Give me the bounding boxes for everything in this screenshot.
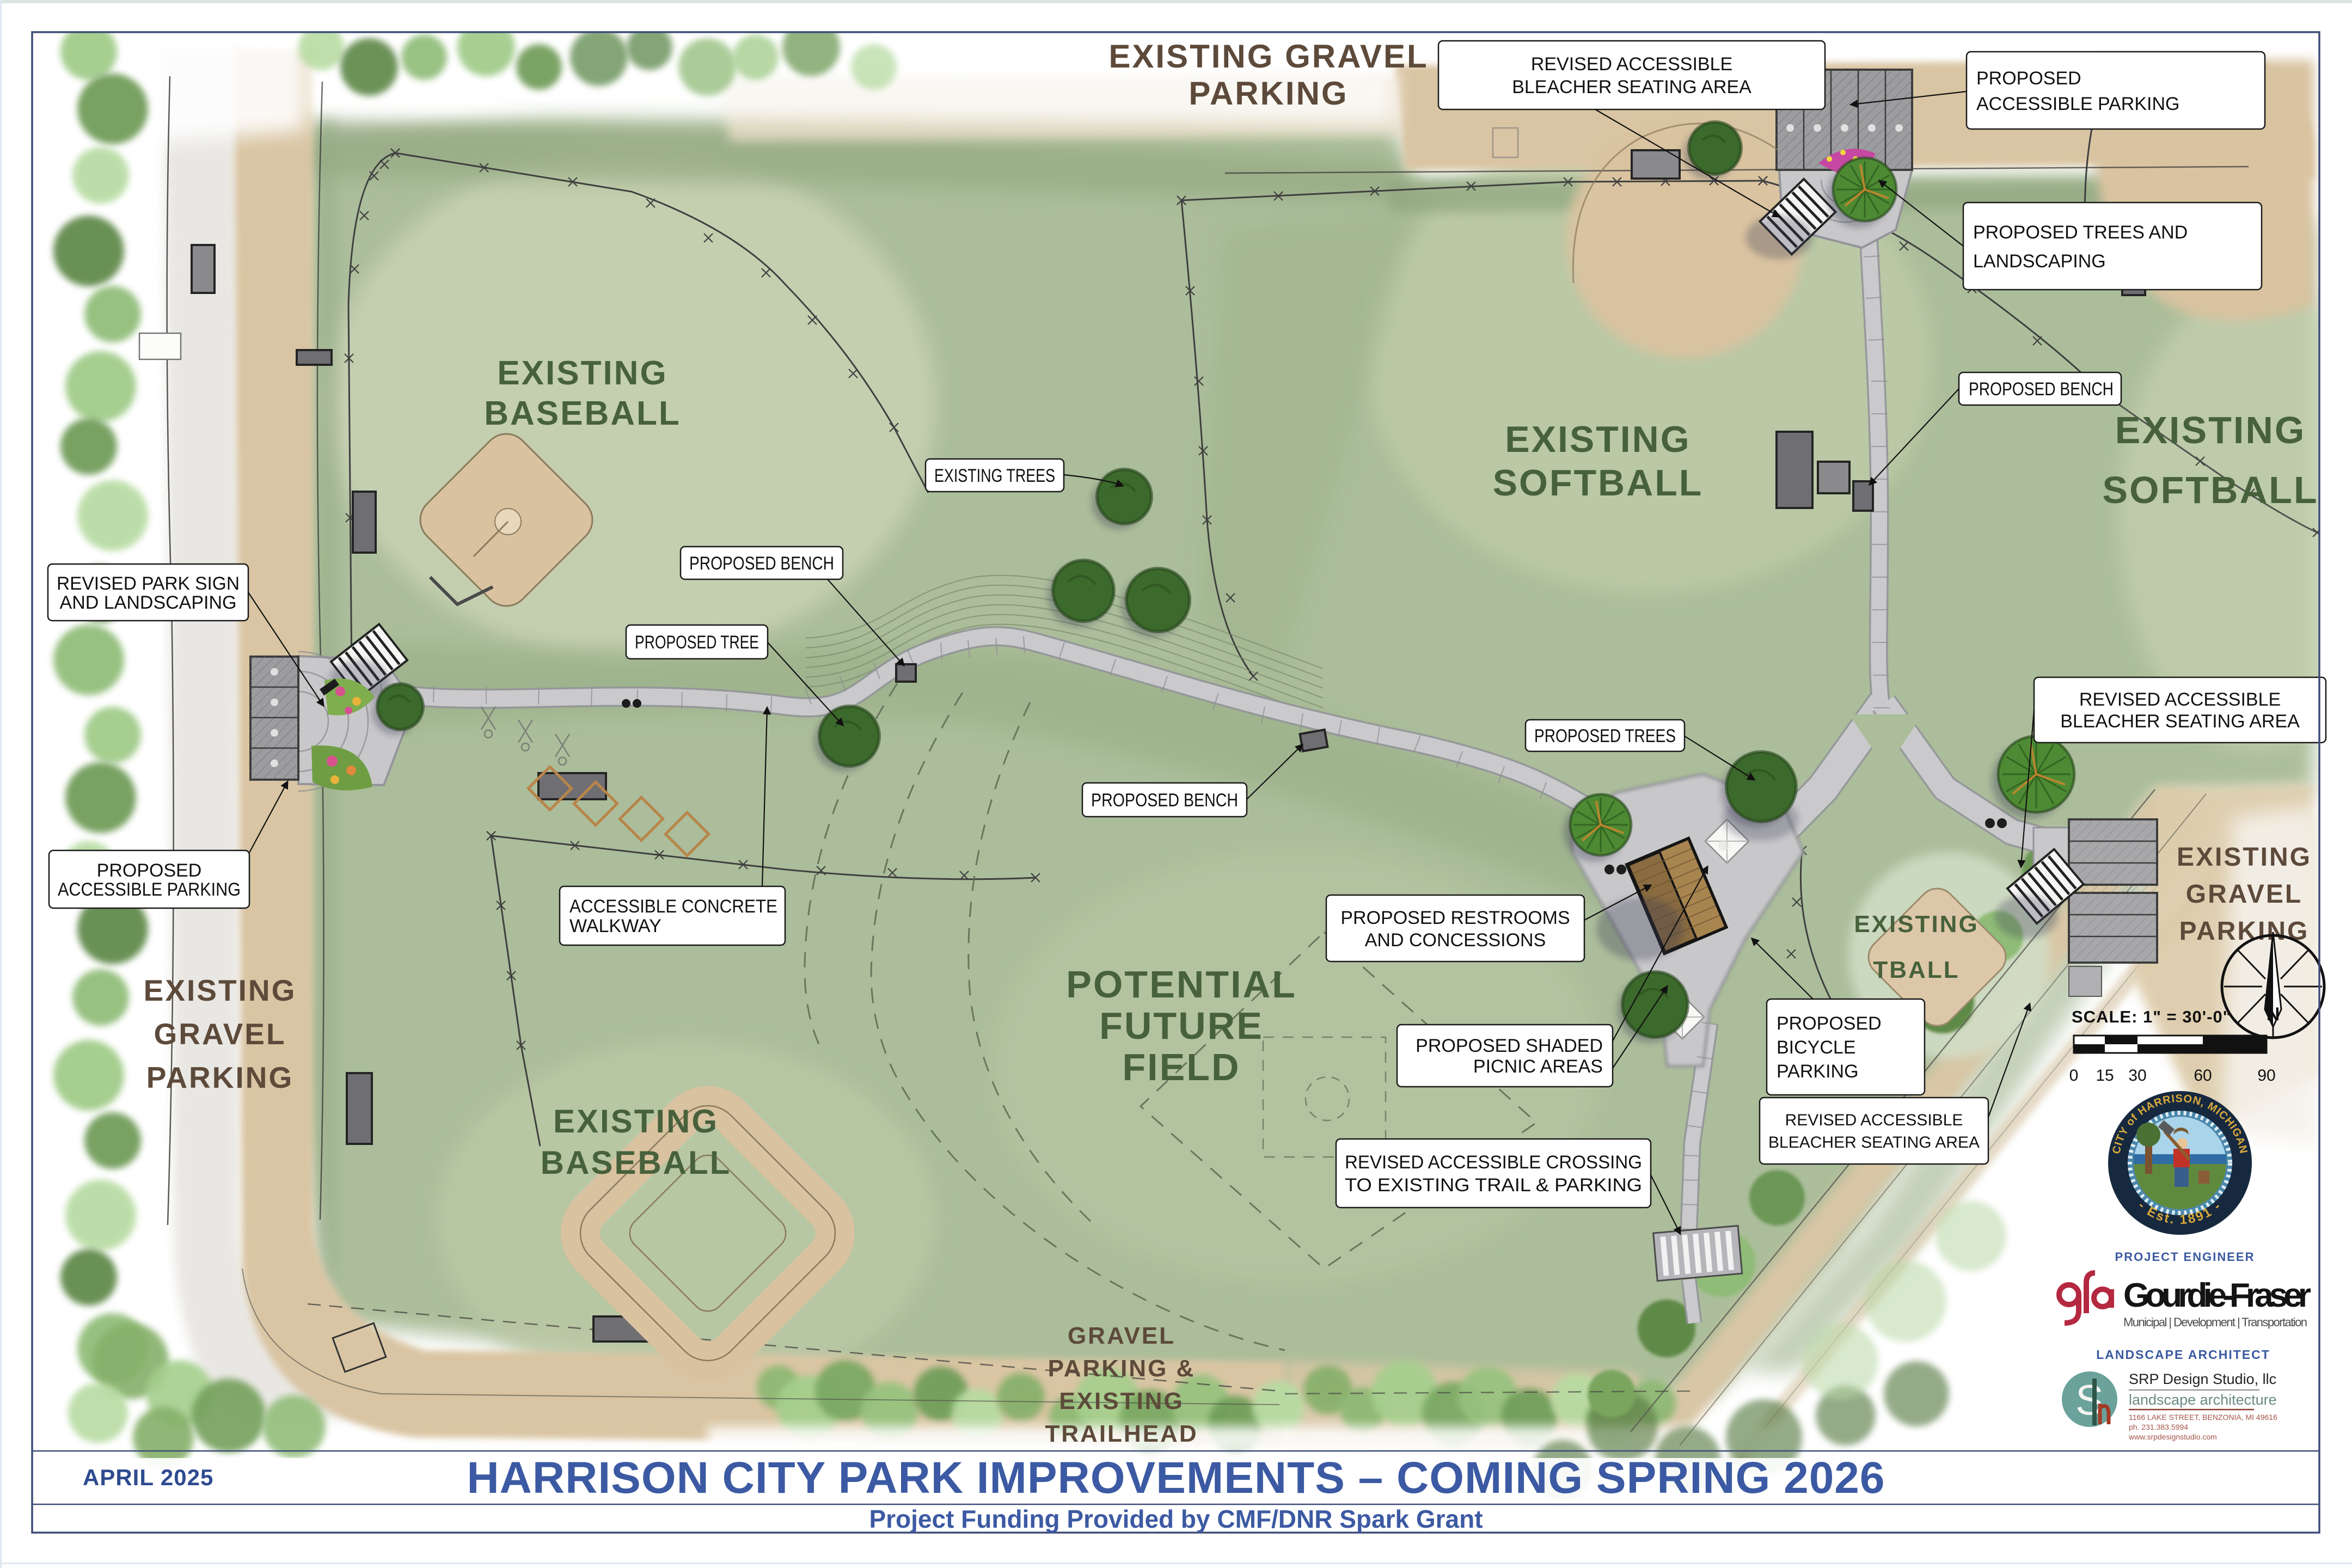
svg-text:60: 60 [2194,1067,2212,1085]
svg-text:PICNIC AREAS: PICNIC AREAS [1473,1056,1603,1077]
svg-text:TO EXISTING TRAIL & PARKING: TO EXISTING TRAIL & PARKING [1345,1175,1642,1196]
svg-text:PROPOSED TREE: PROPOSED TREE [635,632,759,653]
svg-text:PARKING: PARKING [2179,917,2310,946]
svg-text:TRAILHEAD: TRAILHEAD [1045,1420,1198,1447]
svg-text:Gourdie-Fraser: Gourdie-Fraser [2123,1277,2311,1314]
svg-text:EXISTING: EXISTING [553,1103,719,1140]
svg-text:REVISED ACCESSIBLE: REVISED ACCESSIBLE [1531,54,1732,75]
svg-text:FUTURE: FUTURE [1099,1004,1264,1047]
svg-text:PROPOSED: PROPOSED [1976,68,2081,89]
svg-text:PARKING &: PARKING & [1048,1355,1196,1382]
svg-text:ACCESSIBLE PARKING: ACCESSIBLE PARKING [58,879,241,900]
svg-text:PARKING: PARKING [1189,75,1348,112]
svg-text:REVISED ACCESSIBLE: REVISED ACCESSIBLE [1785,1111,1963,1129]
svg-text:GRAVEL: GRAVEL [1068,1322,1175,1349]
svg-text:PROPOSED SHADED: PROPOSED SHADED [1416,1036,1603,1056]
svg-text:REVISED ACCESSIBLE CROSSING: REVISED ACCESSIBLE CROSSING [1345,1152,1642,1173]
svg-text:BASEBALL: BASEBALL [541,1144,732,1181]
svg-text:30: 30 [2128,1067,2146,1085]
svg-text:ph. 231.383.5994: ph. 231.383.5994 [2129,1423,2188,1431]
svg-text:BICYCLE: BICYCLE [1777,1037,1856,1058]
svg-text:BLEACHER SEATING AREA: BLEACHER SEATING AREA [1768,1134,1980,1151]
svg-text:HARRISON CITY PARK IMPROVEMENT: HARRISON CITY PARK IMPROVEMENTS – COMING… [467,1453,1885,1503]
svg-text:LANDSCAPE ARCHITECT: LANDSCAPE ARCHITECT [2096,1347,2270,1362]
svg-text:Project Funding Provided by CM: Project Funding Provided by CMF/DNR Spar… [869,1505,1483,1533]
svg-text:EXISTING: EXISTING [1854,911,1979,938]
svg-text:PROPOSED: PROPOSED [97,860,202,881]
svg-text:EXISTING: EXISTING [497,354,667,392]
svg-text:PARKING: PARKING [1777,1061,1859,1082]
svg-text:SCALE: 1" = 30'-0": SCALE: 1" = 30'-0" [2072,1007,2231,1026]
svg-text:0: 0 [2069,1067,2079,1085]
svg-text:REVISED PARK SIGN: REVISED PARK SIGN [57,573,240,594]
svg-text:Municipal | Development | Tran: Municipal | Development | Transportation [2123,1315,2307,1329]
svg-text:EXISTING GRAVEL: EXISTING GRAVEL [1108,38,1428,75]
svg-text:90: 90 [2257,1067,2275,1085]
svg-text:ACCESSIBLE PARKING: ACCESSIBLE PARKING [1976,94,2180,114]
svg-text:REVISED ACCESSIBLE: REVISED ACCESSIBLE [2079,689,2281,710]
svg-text:EXISTING TREES: EXISTING TREES [934,465,1055,486]
svg-text:APRIL 2025: APRIL 2025 [83,1465,213,1490]
svg-text:N: N [2267,1004,2280,1025]
svg-text:PROPOSED RESTROOMS: PROPOSED RESTROOMS [1340,908,1570,928]
svg-text:GRAVEL: GRAVEL [154,1017,286,1051]
svg-text:EXISTING: EXISTING [1505,419,1690,460]
svg-text:ACCESSIBLE CONCRETE: ACCESSIBLE CONCRETE [569,896,777,917]
svg-text:PROJECT ENGINEER: PROJECT ENGINEER [2115,1250,2255,1264]
svg-text:www.srpdesignstudio.com: www.srpdesignstudio.com [2128,1432,2217,1441]
svg-text:WALKWAY: WALKWAY [569,916,661,936]
svg-text:landscape architecture: landscape architecture [2129,1392,2277,1408]
svg-text:BASEBALL: BASEBALL [484,395,681,432]
svg-text:TBALL: TBALL [1873,957,1959,983]
svg-text:BLEACHER SEATING AREA: BLEACHER SEATING AREA [1512,77,1751,97]
svg-text:PARKING: PARKING [146,1061,294,1094]
svg-text:AND CONCESSIONS: AND CONCESSIONS [1365,930,1546,951]
svg-text:EXISTING: EXISTING [2177,843,2312,872]
svg-text:GRAVEL: GRAVEL [2186,880,2302,909]
svg-text:EXISTING: EXISTING [1059,1388,1184,1414]
svg-text:PROPOSED TREES: PROPOSED TREES [1534,726,1676,746]
svg-text:SOFTBALL: SOFTBALL [2102,469,2318,511]
svg-text:PROPOSED BENCH: PROPOSED BENCH [689,553,834,574]
svg-text:1166 LAKE STREET, BENZONIA, MI: 1166 LAKE STREET, BENZONIA, MI 49616 [2129,1413,2277,1422]
svg-text:PROPOSED BENCH: PROPOSED BENCH [1969,379,2114,400]
svg-text:FIELD: FIELD [1122,1046,1240,1088]
svg-text:AND LANDSCAPING: AND LANDSCAPING [60,592,237,613]
svg-text:BLEACHER SEATING AREA: BLEACHER SEATING AREA [2060,711,2300,732]
svg-text:EXISTING: EXISTING [2115,409,2306,451]
svg-text:SOFTBALL: SOFTBALL [1493,462,1704,504]
svg-text:EXISTING: EXISTING [144,973,297,1007]
svg-text:LANDSCAPING: LANDSCAPING [1973,251,2106,272]
svg-text:POTENTIAL: POTENTIAL [1066,963,1297,1006]
svg-text:PROPOSED: PROPOSED [1777,1013,1882,1034]
svg-text:PROPOSED TREES AND: PROPOSED TREES AND [1973,222,2188,243]
svg-text:PROPOSED BENCH: PROPOSED BENCH [1091,790,1238,811]
svg-text:15: 15 [2096,1067,2114,1085]
svg-text:SRP Design Studio, llc: SRP Design Studio, llc [2129,1371,2276,1387]
